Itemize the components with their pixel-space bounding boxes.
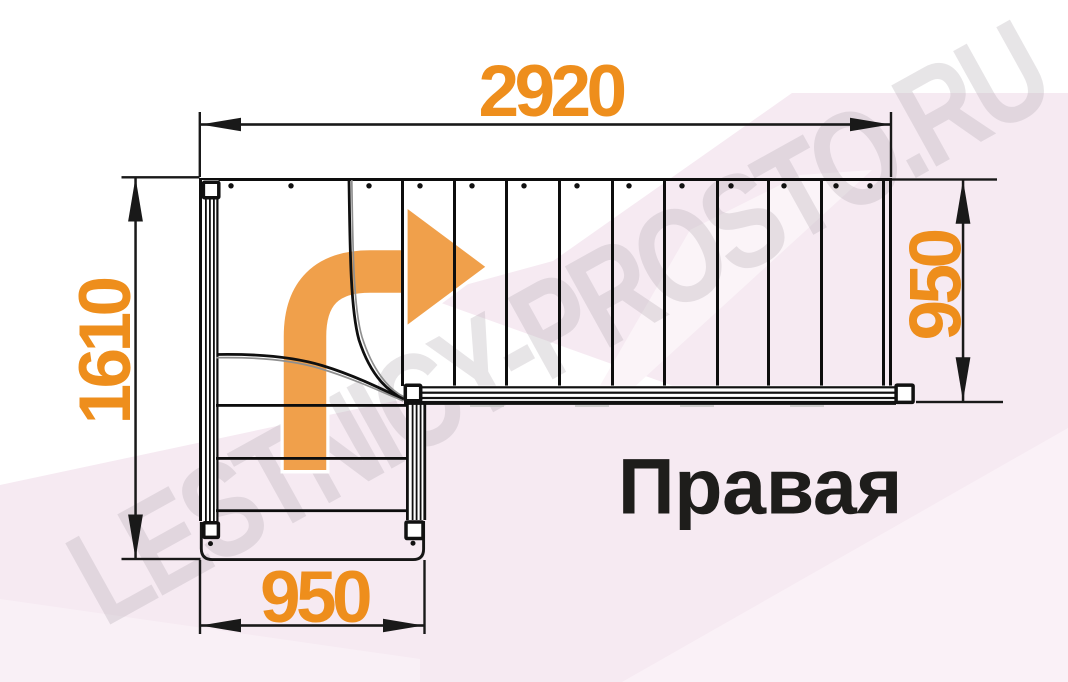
svg-text:Правая: Правая — [618, 442, 902, 531]
svg-text:1610: 1610 — [65, 279, 146, 425]
svg-text:2920: 2920 — [479, 51, 625, 132]
svg-text:950: 950 — [895, 231, 976, 341]
svg-text:950: 950 — [260, 557, 370, 638]
